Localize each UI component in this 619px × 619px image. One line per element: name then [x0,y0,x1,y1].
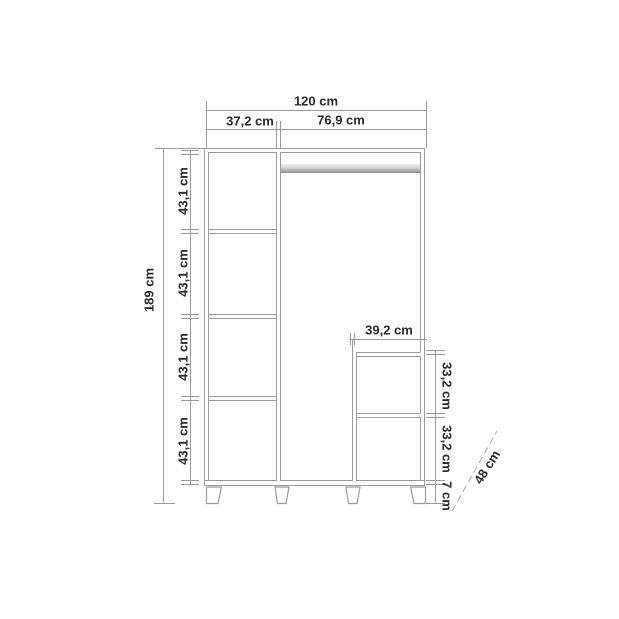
extension-line-partition-a [276,121,277,148]
dim-label-right-section-width: 76,9 cm [317,114,365,127]
dim-tick [181,314,199,315]
dim-tick [426,417,445,418]
dim-tick [181,484,199,485]
dim-tick [181,150,199,151]
dim-line-section-widths [206,129,427,130]
dim-tick [181,154,199,155]
wardrobe-dimension-diagram: 120 cm 37,2 cm 76,9 cm 189 cm 43,1 cm 43… [0,0,619,619]
dim-tick [426,350,445,351]
dim-tick [181,318,199,319]
dim-label-inner-unit-width: 39,2 cm [365,324,413,337]
extension-line-inner-unit [352,339,353,353]
dim-line-total-height [163,148,164,503]
extension-line-top-left [206,101,207,148]
dim-tick [181,396,199,397]
extension-line-partition-b [280,121,281,148]
dim-label-total-width: 120 cm [294,95,338,108]
dim-tick [181,480,199,481]
foot-1 [207,487,222,504]
foot-4 [411,487,426,504]
dim-label-left-cell-1: 43,1 cm [177,167,190,215]
dim-tick [181,233,199,234]
dim-line-inner-width [350,339,427,340]
dim-tick [181,400,199,401]
tick-total-height-bottom [154,503,175,504]
dim-label-left-cell-2: 43,1 cm [177,249,190,297]
dim-label-inner-cell-2: 33,2 cm [441,425,454,473]
dim-tick [426,354,445,355]
foot-3 [346,487,360,504]
extension-line-top-right [426,101,427,148]
dim-label-inner-cell-1: 33,2 cm [441,362,454,410]
dim-tick [181,229,199,230]
dim-line-total-width [206,110,427,111]
dim-label-left-section-width: 37,2 cm [226,115,274,128]
dim-label-left-cell-4: 43,1 cm [177,417,190,465]
dim-label-left-cell-3: 43,1 cm [177,333,190,381]
dim-label-feet-height: 7 cm [441,481,454,511]
dim-label-total-height: 189 cm [143,268,156,312]
dim-tick [426,413,445,414]
foot-2 [275,487,289,504]
